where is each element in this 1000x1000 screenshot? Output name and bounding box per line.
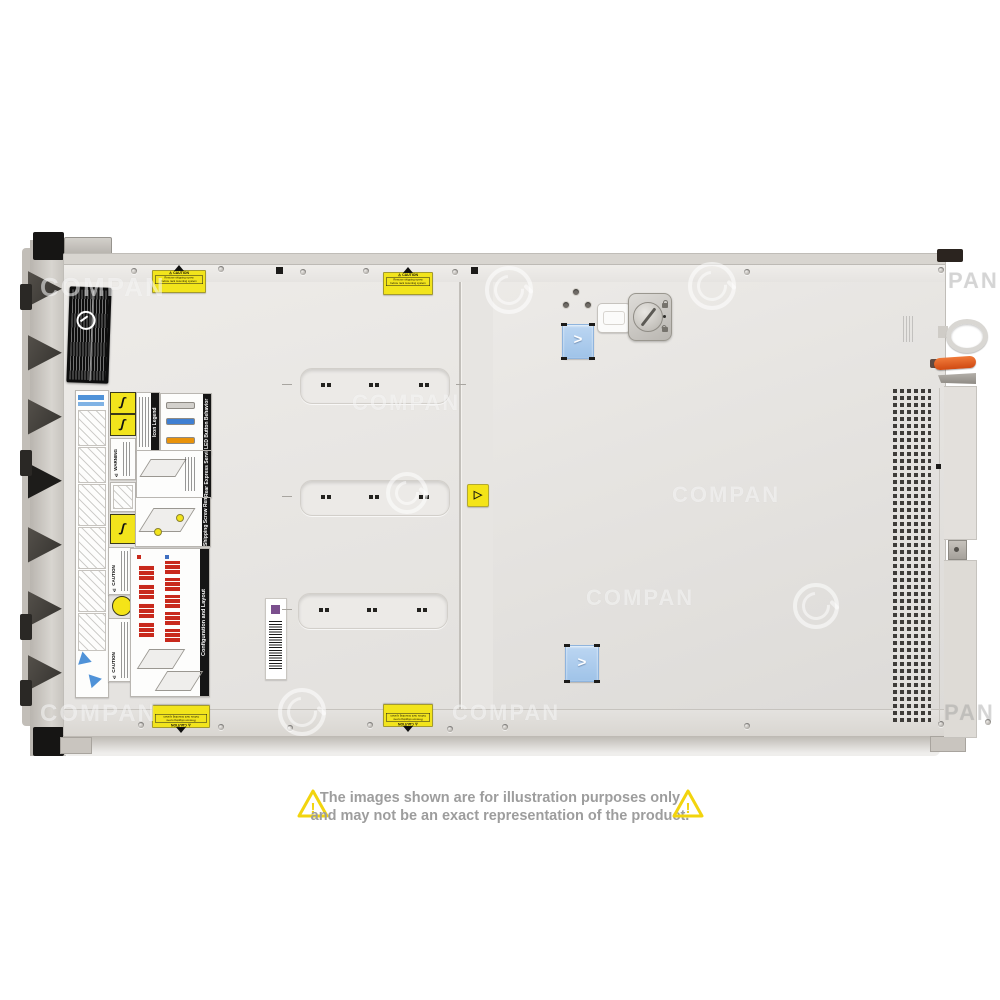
service-tag-header: Rear Express Service Tag	[203, 451, 211, 497]
disclaimer: The images shown are for illustration pu…	[0, 789, 1000, 825]
drive-bay-grid-right	[165, 561, 180, 646]
chassis-foot	[60, 737, 92, 754]
cover-removal-label	[75, 390, 109, 698]
warning-glyph-cell: ∫	[110, 392, 136, 414]
drive-bay-grid-left	[139, 565, 154, 641]
caution-text: ⚠ CAUTION	[111, 621, 116, 679]
lock-open-icon	[662, 327, 668, 332]
latch-clip	[564, 644, 570, 647]
yellow-marker	[176, 514, 184, 522]
lock-indicator-dot	[663, 315, 666, 318]
alignment-hole	[562, 301, 570, 309]
drive-bay-group	[139, 565, 154, 580]
chevron-right-icon: >	[578, 654, 587, 671]
caution-sticker-bottom-right: ⚠ CAUTION Remove shipping screw before r…	[383, 704, 433, 727]
watermark-text: COMPAN	[352, 390, 460, 416]
square-hole	[471, 267, 478, 274]
blue-arrow-icon	[89, 672, 104, 688]
vent-square	[325, 608, 329, 612]
chassis-foot	[930, 736, 966, 752]
screw	[447, 726, 453, 732]
instruction-diagram	[78, 410, 106, 446]
serial-barcode-sticker	[265, 598, 287, 680]
bezel-wedge	[28, 460, 64, 512]
watermark-text: COMPAN	[452, 700, 560, 726]
caution-line1: Remove shipping screw	[156, 718, 207, 721]
screw	[218, 724, 224, 730]
triangle-glyph: ▷	[474, 489, 482, 501]
warning-text-label: ⚠ WARNING	[110, 438, 136, 480]
orange-release-lever	[934, 356, 977, 371]
vent-square	[369, 383, 373, 387]
warning-glyph-cell: ∫	[110, 514, 136, 544]
led-bar-blue	[166, 418, 195, 425]
bezel-nub	[20, 680, 32, 706]
etched-dash	[282, 496, 292, 497]
caution-title: ⚠ CAUTION	[384, 722, 432, 727]
watermark-text: COMPAN	[672, 482, 780, 508]
instruction-diagram	[78, 570, 106, 612]
cover-keylock	[628, 293, 672, 341]
alignment-hole	[584, 301, 592, 309]
cover-recess-slot	[298, 593, 448, 629]
legend-red-square	[137, 555, 141, 559]
watermark-logo-icon	[793, 583, 839, 629]
led-button-behavior-label: LED Button Behavior	[160, 393, 212, 455]
latch-clip	[589, 323, 595, 326]
disclaimer-line1: The images shown are for illustration pu…	[0, 789, 1000, 807]
bezel-wedge	[28, 396, 64, 448]
caution-sticker-top-right: ⚠ CAUTION Remove shipping screw before r…	[383, 272, 433, 295]
screw	[218, 266, 224, 272]
caution-sticker-bottom-left: ⚠ CAUTION Remove shipping screw before r…	[152, 705, 210, 728]
watermark-logo-icon	[278, 688, 326, 736]
vent-square	[369, 495, 373, 499]
screw	[363, 268, 369, 274]
service-label-cluster: ∫ ∫ ⚠ WARNING ∫ Icon Legend LED Button B…	[75, 388, 211, 700]
fine-print	[121, 622, 130, 678]
icon-legend-header: Icon Legend	[151, 393, 159, 451]
watermark-fragment: PAN	[944, 700, 995, 726]
vent-square	[419, 383, 423, 387]
vent-grid	[893, 388, 931, 722]
rack-ear-top	[33, 232, 64, 260]
screw	[744, 269, 750, 275]
icon-legend-label: Icon Legend	[136, 392, 160, 452]
watermark-text: COMPAN	[40, 700, 157, 728]
vent-square	[327, 383, 331, 387]
legend-rows	[139, 397, 149, 447]
drive-bay-group	[165, 595, 180, 608]
square-hole	[936, 464, 941, 469]
caution-line2: before rack mounting system	[156, 715, 207, 718]
lock-closed-icon	[662, 303, 668, 308]
front-drive-edge	[30, 240, 66, 756]
shipping-screw-diagram	[139, 508, 196, 532]
warning-text: ⚠ WARNING	[113, 441, 118, 477]
vent-square	[417, 608, 421, 612]
layout-diagram	[155, 671, 203, 691]
warning-glyph-cell: ∫	[110, 414, 136, 436]
vent-square	[423, 608, 427, 612]
drive-bay-group	[139, 622, 154, 637]
instruction-diagram	[113, 485, 133, 509]
vent-square	[425, 383, 429, 387]
warning-triangle-icon: !	[671, 787, 705, 821]
label-header-bar	[78, 395, 104, 400]
fine-print	[121, 551, 130, 591]
alignment-hole	[572, 288, 580, 296]
latch-clip	[594, 680, 600, 683]
etched-dash	[456, 384, 466, 385]
bezel-nub	[20, 614, 32, 640]
screw	[367, 722, 373, 728]
latch-clip	[564, 680, 570, 683]
instruction-diagram	[78, 447, 106, 483]
latch-slot	[603, 311, 625, 325]
vent-square	[375, 383, 379, 387]
caution-line1: Remove shipping screw	[387, 717, 430, 720]
instruction-diagram	[78, 613, 106, 651]
fine-print	[123, 442, 132, 476]
fine-print	[185, 457, 197, 491]
caution-title: ⚠ CAUTION	[153, 723, 209, 728]
cable-glyph: ∫	[119, 415, 127, 432]
square-hole	[276, 267, 283, 274]
led-bar-gray	[166, 402, 195, 409]
label-header-bar	[78, 402, 104, 406]
watermark-logo-icon	[386, 472, 428, 514]
cover-recess-slot	[300, 480, 450, 516]
watermark-fragment: PAN	[948, 268, 999, 294]
cable-glyph: ∫	[119, 393, 127, 410]
drive-bay-group	[165, 612, 180, 625]
bezel-wedge	[28, 332, 64, 384]
rear-tab	[937, 249, 963, 262]
vent-square	[367, 608, 371, 612]
drive-bay-group	[139, 603, 154, 618]
vent-square	[319, 608, 323, 612]
yellow-marker	[154, 528, 162, 536]
screw	[300, 269, 306, 275]
vent-square	[327, 495, 331, 499]
drive-bay-group	[165, 629, 180, 642]
cable-glyph: ∫	[118, 515, 128, 541]
bezel-wedge	[28, 652, 64, 704]
drive-bay-group	[165, 578, 180, 591]
hazard-triangle-sticker: ▷	[467, 484, 489, 507]
slide-latch	[597, 303, 631, 333]
vent-square	[321, 383, 325, 387]
watermark-logo-icon	[688, 262, 736, 310]
latch-clip	[594, 644, 600, 647]
chevron-right-icon: >	[574, 331, 583, 348]
drive-bay-group	[165, 561, 180, 574]
etched-marking	[903, 316, 913, 342]
barcode-chip	[271, 605, 280, 614]
latch-clip	[561, 357, 567, 360]
led-label-header: LED Button Behavior	[203, 394, 211, 454]
vent-square	[375, 495, 379, 499]
legend-blue-square	[165, 555, 169, 559]
blue-arrow-icon	[78, 651, 94, 668]
chassis-bottom-shadow	[63, 736, 940, 756]
bezel-nub	[20, 284, 32, 310]
disclaimer-line2: and may not be an exact representation o…	[0, 807, 1000, 825]
watermark-text: COMPAN	[40, 272, 166, 303]
bezel-nub	[20, 450, 32, 476]
cover-release-latch-top: >	[562, 324, 594, 359]
caution-line2: before rack mounting system	[387, 282, 430, 285]
instruction-mini-label	[110, 482, 136, 512]
configuration-layout-label: Configuration and Layout	[130, 548, 210, 697]
bezel-wedge	[28, 588, 64, 640]
vent-square	[321, 495, 325, 499]
rear-panel-upper	[944, 386, 977, 540]
instruction-diagram	[78, 527, 106, 569]
layout-diagram	[137, 649, 185, 669]
svg-text:!: !	[686, 800, 691, 817]
service-tag-diagram	[139, 459, 186, 477]
product-photo: ⚠ CAUTION Remove shipping screw before r…	[0, 0, 1000, 1000]
two-person-lift-icon	[112, 596, 132, 616]
service-tag-label: Rear Express Service Tag	[136, 450, 212, 498]
screw	[452, 269, 458, 275]
cover-release-latch-bottom: >	[565, 645, 599, 682]
shipping-screw-label: Shipping Screw Removal	[135, 497, 211, 547]
caution-text: ⚠ CAUTION	[111, 550, 116, 592]
latch-clip	[561, 323, 567, 326]
vent-square	[373, 608, 377, 612]
panel-seam	[939, 388, 940, 722]
drive-bay-group	[139, 584, 154, 599]
latch-clip	[589, 357, 595, 360]
etched-dash	[282, 384, 292, 385]
barcode	[269, 621, 282, 669]
bezel-wedge	[28, 524, 64, 576]
led-bar-orange	[166, 437, 195, 444]
screw	[938, 267, 944, 273]
caution-line2: before rack mounting system	[387, 714, 430, 717]
keylock-cylinder	[633, 302, 663, 332]
rear-ring-handle	[946, 319, 988, 353]
instruction-diagram	[78, 484, 106, 526]
key-slot	[641, 307, 657, 326]
shipping-screw-header: Shipping Screw Removal	[202, 498, 210, 546]
screw	[744, 723, 750, 729]
rear-thumbscrew	[948, 540, 967, 560]
etched-dash	[282, 609, 292, 610]
chassis-top-lip	[64, 254, 945, 265]
watermark-logo-icon	[485, 266, 533, 314]
watermark-text: COMPAN	[586, 585, 694, 611]
